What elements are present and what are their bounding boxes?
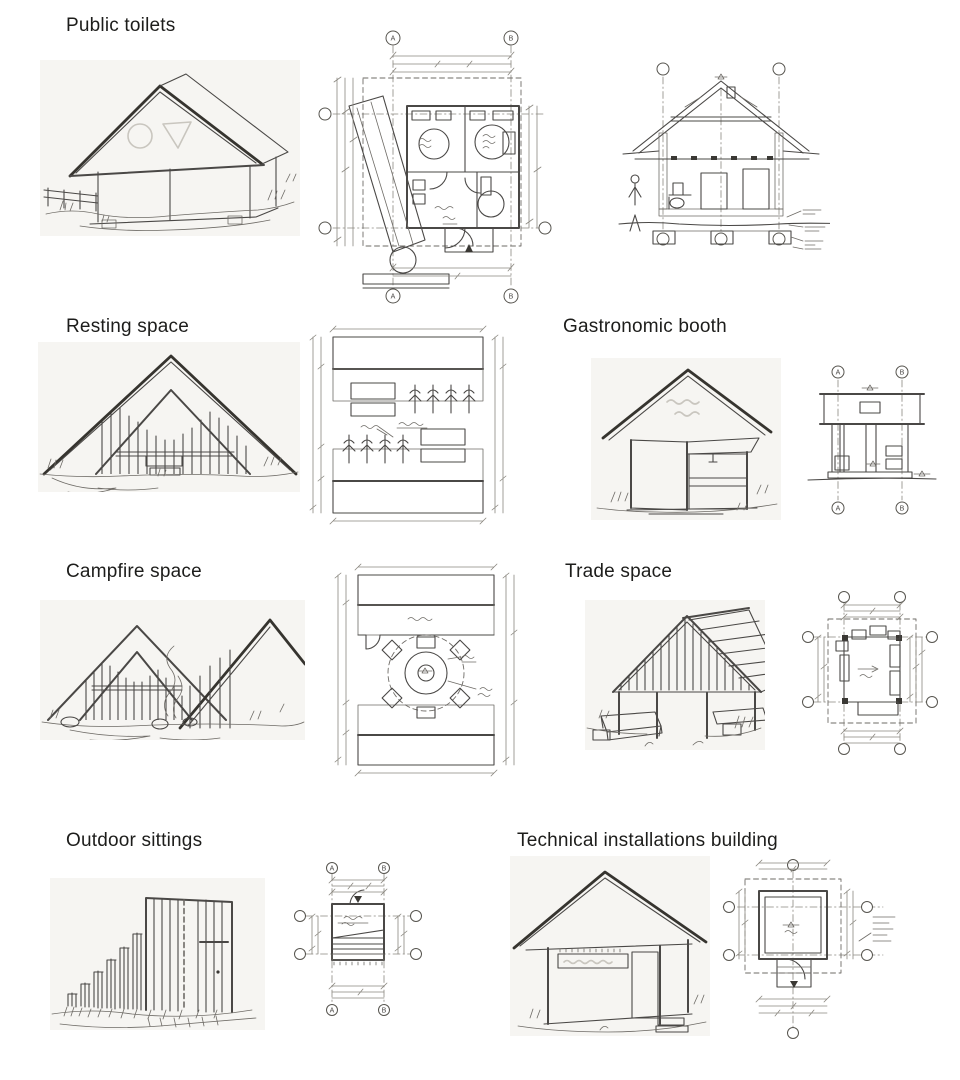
grid-axes bbox=[333, 46, 545, 288]
smoke bbox=[164, 646, 182, 718]
left-a-frame bbox=[40, 600, 305, 740]
campfire-space-sketch bbox=[40, 600, 305, 740]
svg-text:B: B bbox=[900, 506, 905, 513]
section-label-public-toilets: Public toilets bbox=[66, 15, 175, 37]
section-label-gastronomic-booth: Gastronomic booth bbox=[563, 316, 727, 338]
resting-space-floor-plan bbox=[303, 323, 513, 528]
cabin-walls bbox=[70, 157, 278, 224]
gastronomic-booth-sketch bbox=[591, 358, 781, 520]
grid-axes bbox=[814, 603, 926, 743]
roof-bands bbox=[333, 337, 483, 513]
ramp bbox=[349, 96, 449, 288]
resting-space-sketch bbox=[38, 342, 300, 492]
trade-space-sketch bbox=[585, 600, 765, 750]
fire-pit bbox=[382, 635, 492, 718]
toilet-stall-circle bbox=[419, 129, 449, 159]
dimension-chains bbox=[736, 860, 856, 1016]
svg-text:A: A bbox=[836, 370, 841, 377]
benches bbox=[382, 637, 470, 718]
svg-text:A: A bbox=[391, 36, 396, 43]
sketchbook-page: Public toilets bbox=[0, 0, 960, 1080]
dimension-chains bbox=[334, 52, 541, 279]
kiosk-roof bbox=[603, 370, 771, 440]
bike-racks bbox=[343, 385, 475, 463]
svg-text:B: B bbox=[382, 1008, 387, 1015]
svg-text:A: A bbox=[391, 294, 396, 301]
section-label-trade-space: Trade space bbox=[565, 561, 672, 583]
dimension-chains bbox=[815, 602, 925, 743]
ground-grass bbox=[40, 457, 298, 492]
grid-axes bbox=[838, 380, 902, 500]
svg-text:A: A bbox=[330, 1008, 335, 1015]
gable-frame bbox=[613, 608, 765, 692]
stepped-planks bbox=[68, 933, 142, 1010]
toilet-stall-circle bbox=[475, 125, 509, 159]
hut-body bbox=[544, 940, 692, 1024]
technical-building-sketch bbox=[510, 856, 710, 1036]
gastronomic-booth-section: A B A B bbox=[802, 360, 942, 518]
svg-text:B: B bbox=[382, 866, 387, 873]
grid-axes bbox=[306, 874, 410, 1004]
section-label-outdoor-sittings: Outdoor sittings bbox=[66, 830, 202, 852]
sign-lettering bbox=[667, 400, 699, 416]
pavilion-plan bbox=[836, 626, 902, 715]
kiosk-body bbox=[627, 438, 759, 514]
handwritten-notes bbox=[361, 423, 427, 438]
enclosure-plan bbox=[332, 890, 384, 965]
section-label-campfire-space: Campfire space bbox=[66, 561, 202, 583]
steps-ground bbox=[518, 995, 706, 1032]
entrance bbox=[445, 228, 493, 252]
technical-building-floor-plan bbox=[715, 855, 905, 1040]
side-roof-plane bbox=[689, 610, 765, 692]
human-silhouette bbox=[681, 694, 697, 740]
svg-text:B: B bbox=[509, 294, 514, 301]
roof-outline bbox=[363, 78, 521, 246]
grid-bubbles bbox=[803, 592, 938, 755]
entry-vestibule bbox=[777, 959, 811, 988]
section-label-resting-space: Resting space bbox=[66, 316, 189, 338]
door-marker bbox=[354, 896, 362, 903]
booth-elevation bbox=[820, 385, 924, 472]
annotation-leaders bbox=[859, 917, 895, 941]
svg-text:A: A bbox=[330, 866, 335, 873]
door bbox=[632, 952, 658, 1018]
dimension-chains bbox=[310, 326, 506, 524]
grid-bubbles: A B A B bbox=[295, 863, 422, 1016]
public-toilets-floor-plan: A B A B bbox=[315, 22, 555, 310]
handwritten-room-labels bbox=[419, 135, 495, 225]
outdoor-sittings-floor-plan: A B A B bbox=[288, 858, 428, 1018]
a-frame-shelter bbox=[38, 342, 300, 492]
hut-roof bbox=[514, 872, 706, 950]
ground bbox=[808, 471, 936, 491]
public-toilets-sketch bbox=[40, 60, 300, 236]
trade-space-floor-plan bbox=[800, 585, 945, 760]
grid-axes bbox=[723, 871, 883, 1027]
svg-text:B: B bbox=[509, 36, 514, 43]
svg-text:A: A bbox=[836, 506, 841, 513]
cabin-roof bbox=[70, 74, 288, 176]
grid-bubbles bbox=[724, 860, 873, 1039]
annotation-leaders bbox=[787, 210, 825, 249]
north-arrow bbox=[465, 244, 473, 252]
posts bbox=[619, 692, 755, 738]
public-toilets-section bbox=[615, 55, 830, 255]
walls-floor bbox=[635, 133, 809, 216]
svg-text:B: B bbox=[900, 370, 905, 377]
outdoor-sittings-sketch bbox=[50, 878, 265, 1030]
tall-block bbox=[146, 898, 232, 1012]
ground-grass bbox=[46, 174, 296, 231]
ground-rocks bbox=[42, 704, 304, 740]
toilet-symbols bbox=[128, 122, 191, 148]
campfire-space-floor-plan bbox=[330, 563, 522, 778]
section-label-technical-installations-building: Technical installations building bbox=[517, 830, 778, 852]
door-handle bbox=[216, 970, 219, 973]
